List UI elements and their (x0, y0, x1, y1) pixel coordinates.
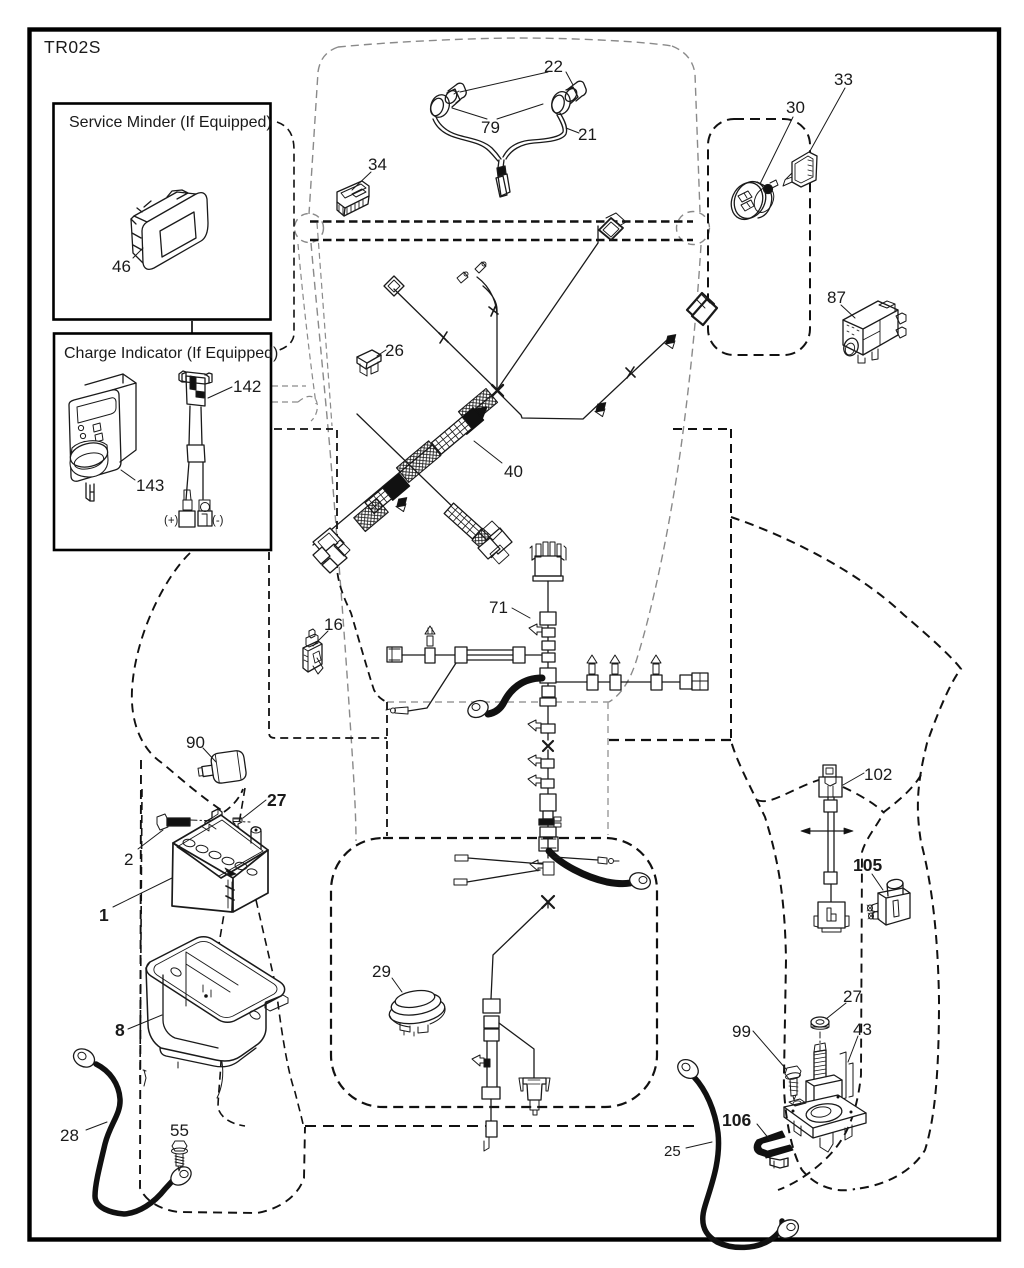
svg-text:142: 142 (233, 377, 261, 396)
svg-text:30: 30 (786, 98, 805, 117)
svg-text:27: 27 (267, 790, 286, 810)
svg-text:29: 29 (372, 962, 391, 981)
svg-text:71: 71 (489, 598, 508, 617)
svg-text:21: 21 (578, 125, 597, 144)
svg-text:102: 102 (864, 765, 892, 784)
svg-text:(-): (-) (212, 515, 224, 527)
svg-text:40: 40 (504, 462, 523, 481)
svg-text:25: 25 (664, 1143, 681, 1160)
svg-text:99: 99 (732, 1022, 751, 1041)
svg-text:143: 143 (136, 476, 164, 495)
svg-text:46: 46 (112, 257, 131, 276)
svg-text:34: 34 (368, 155, 387, 174)
svg-text:90: 90 (186, 733, 205, 752)
svg-text:26: 26 (385, 341, 404, 360)
svg-text:33: 33 (834, 70, 853, 89)
svg-text:(+): (+) (164, 515, 179, 527)
svg-text:2: 2 (124, 850, 133, 869)
svg-text:43: 43 (853, 1020, 872, 1039)
svg-text:28: 28 (60, 1126, 79, 1145)
svg-text:16: 16 (324, 615, 343, 634)
svg-text:87: 87 (827, 288, 846, 307)
svg-text:106: 106 (722, 1110, 751, 1130)
svg-text:TR02S: TR02S (44, 37, 101, 57)
svg-text:Service Minder (If Equipped): Service Minder (If Equipped) (69, 114, 272, 131)
svg-text:22: 22 (544, 57, 563, 76)
svg-text:79: 79 (481, 118, 500, 137)
svg-text:105: 105 (853, 855, 882, 875)
svg-text:27: 27 (843, 987, 862, 1006)
svg-text:Charge Indicator (If Equipped): Charge Indicator (If Equipped) (64, 345, 278, 362)
svg-text:1: 1 (99, 905, 109, 925)
svg-text:55: 55 (170, 1121, 189, 1140)
svg-text:8: 8 (115, 1020, 125, 1040)
